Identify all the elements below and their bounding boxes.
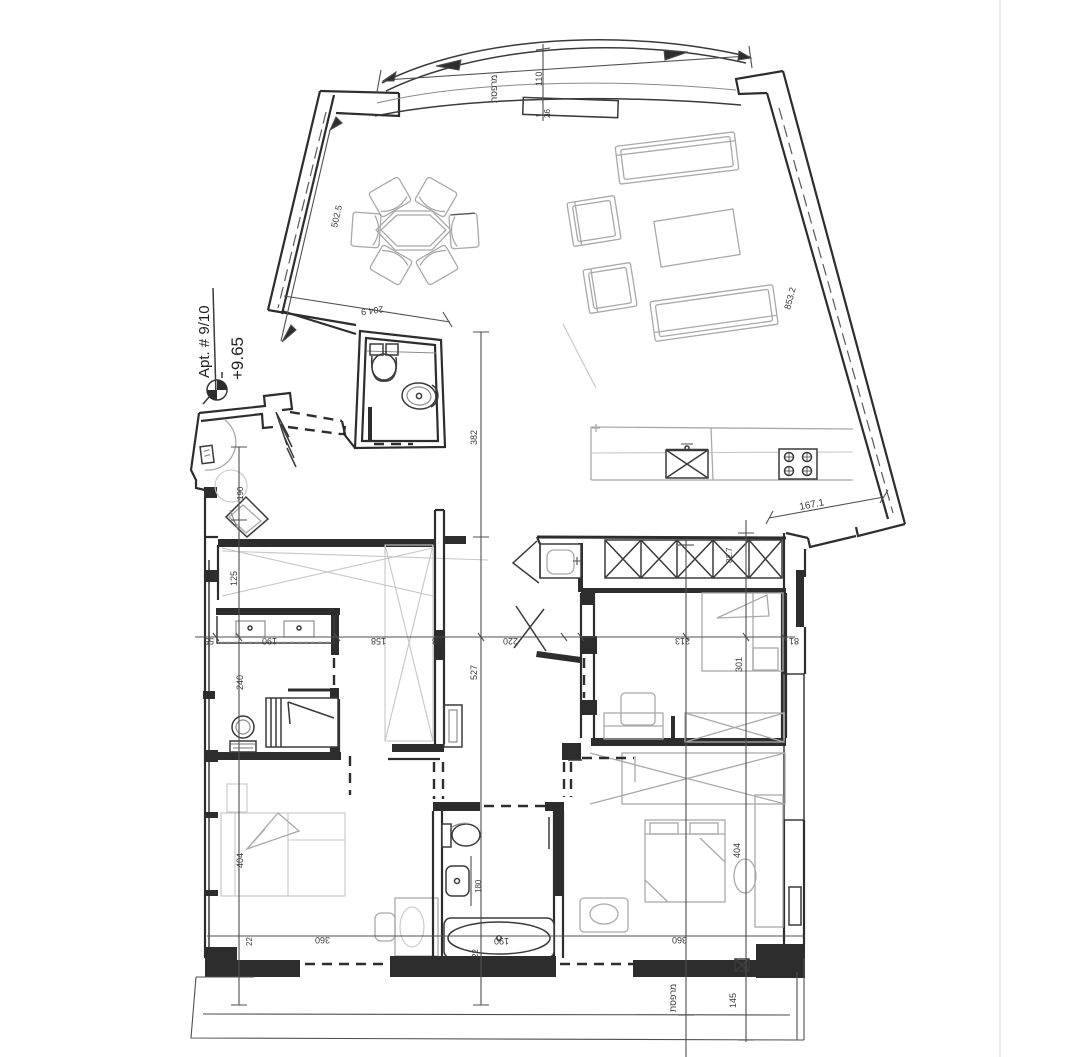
- svg-text:404: 404: [235, 853, 245, 868]
- svg-text:301: 301: [734, 657, 744, 672]
- svg-text:313: 313: [675, 636, 690, 646]
- svg-text:360: 360: [672, 935, 687, 945]
- svg-text:220: 220: [503, 636, 518, 646]
- svg-text:240: 240: [235, 675, 245, 690]
- svg-text:360: 360: [315, 935, 330, 945]
- svg-text:+9.65: +9.65: [228, 337, 247, 380]
- svg-text:Apt. # 9/10: Apt. # 9/10: [196, 305, 213, 378]
- svg-text:190: 190: [262, 636, 277, 646]
- svg-text:82.7: 82.7: [725, 547, 734, 563]
- svg-text:145: 145: [728, 993, 738, 1008]
- svg-text:22: 22: [471, 949, 480, 958]
- svg-text:98: 98: [432, 636, 442, 646]
- svg-text:190: 190: [236, 486, 245, 500]
- svg-text:527: 527: [469, 665, 479, 680]
- svg-text:125: 125: [229, 571, 239, 586]
- svg-text:מרפסת: מרפסת: [489, 75, 499, 103]
- svg-text:55: 55: [204, 636, 214, 646]
- svg-text:180: 180: [474, 879, 483, 893]
- svg-text:110: 110: [534, 72, 544, 86]
- svg-text:22: 22: [738, 961, 747, 970]
- svg-text:158: 158: [371, 636, 386, 646]
- svg-text:404: 404: [732, 843, 742, 858]
- svg-text:22: 22: [245, 937, 254, 946]
- svg-text:190: 190: [494, 936, 509, 946]
- svg-text:81: 81: [789, 636, 799, 646]
- svg-text:382: 382: [469, 430, 479, 445]
- svg-text:מרפסת: מרפסת: [668, 984, 678, 1012]
- svg-text:26: 26: [543, 109, 552, 118]
